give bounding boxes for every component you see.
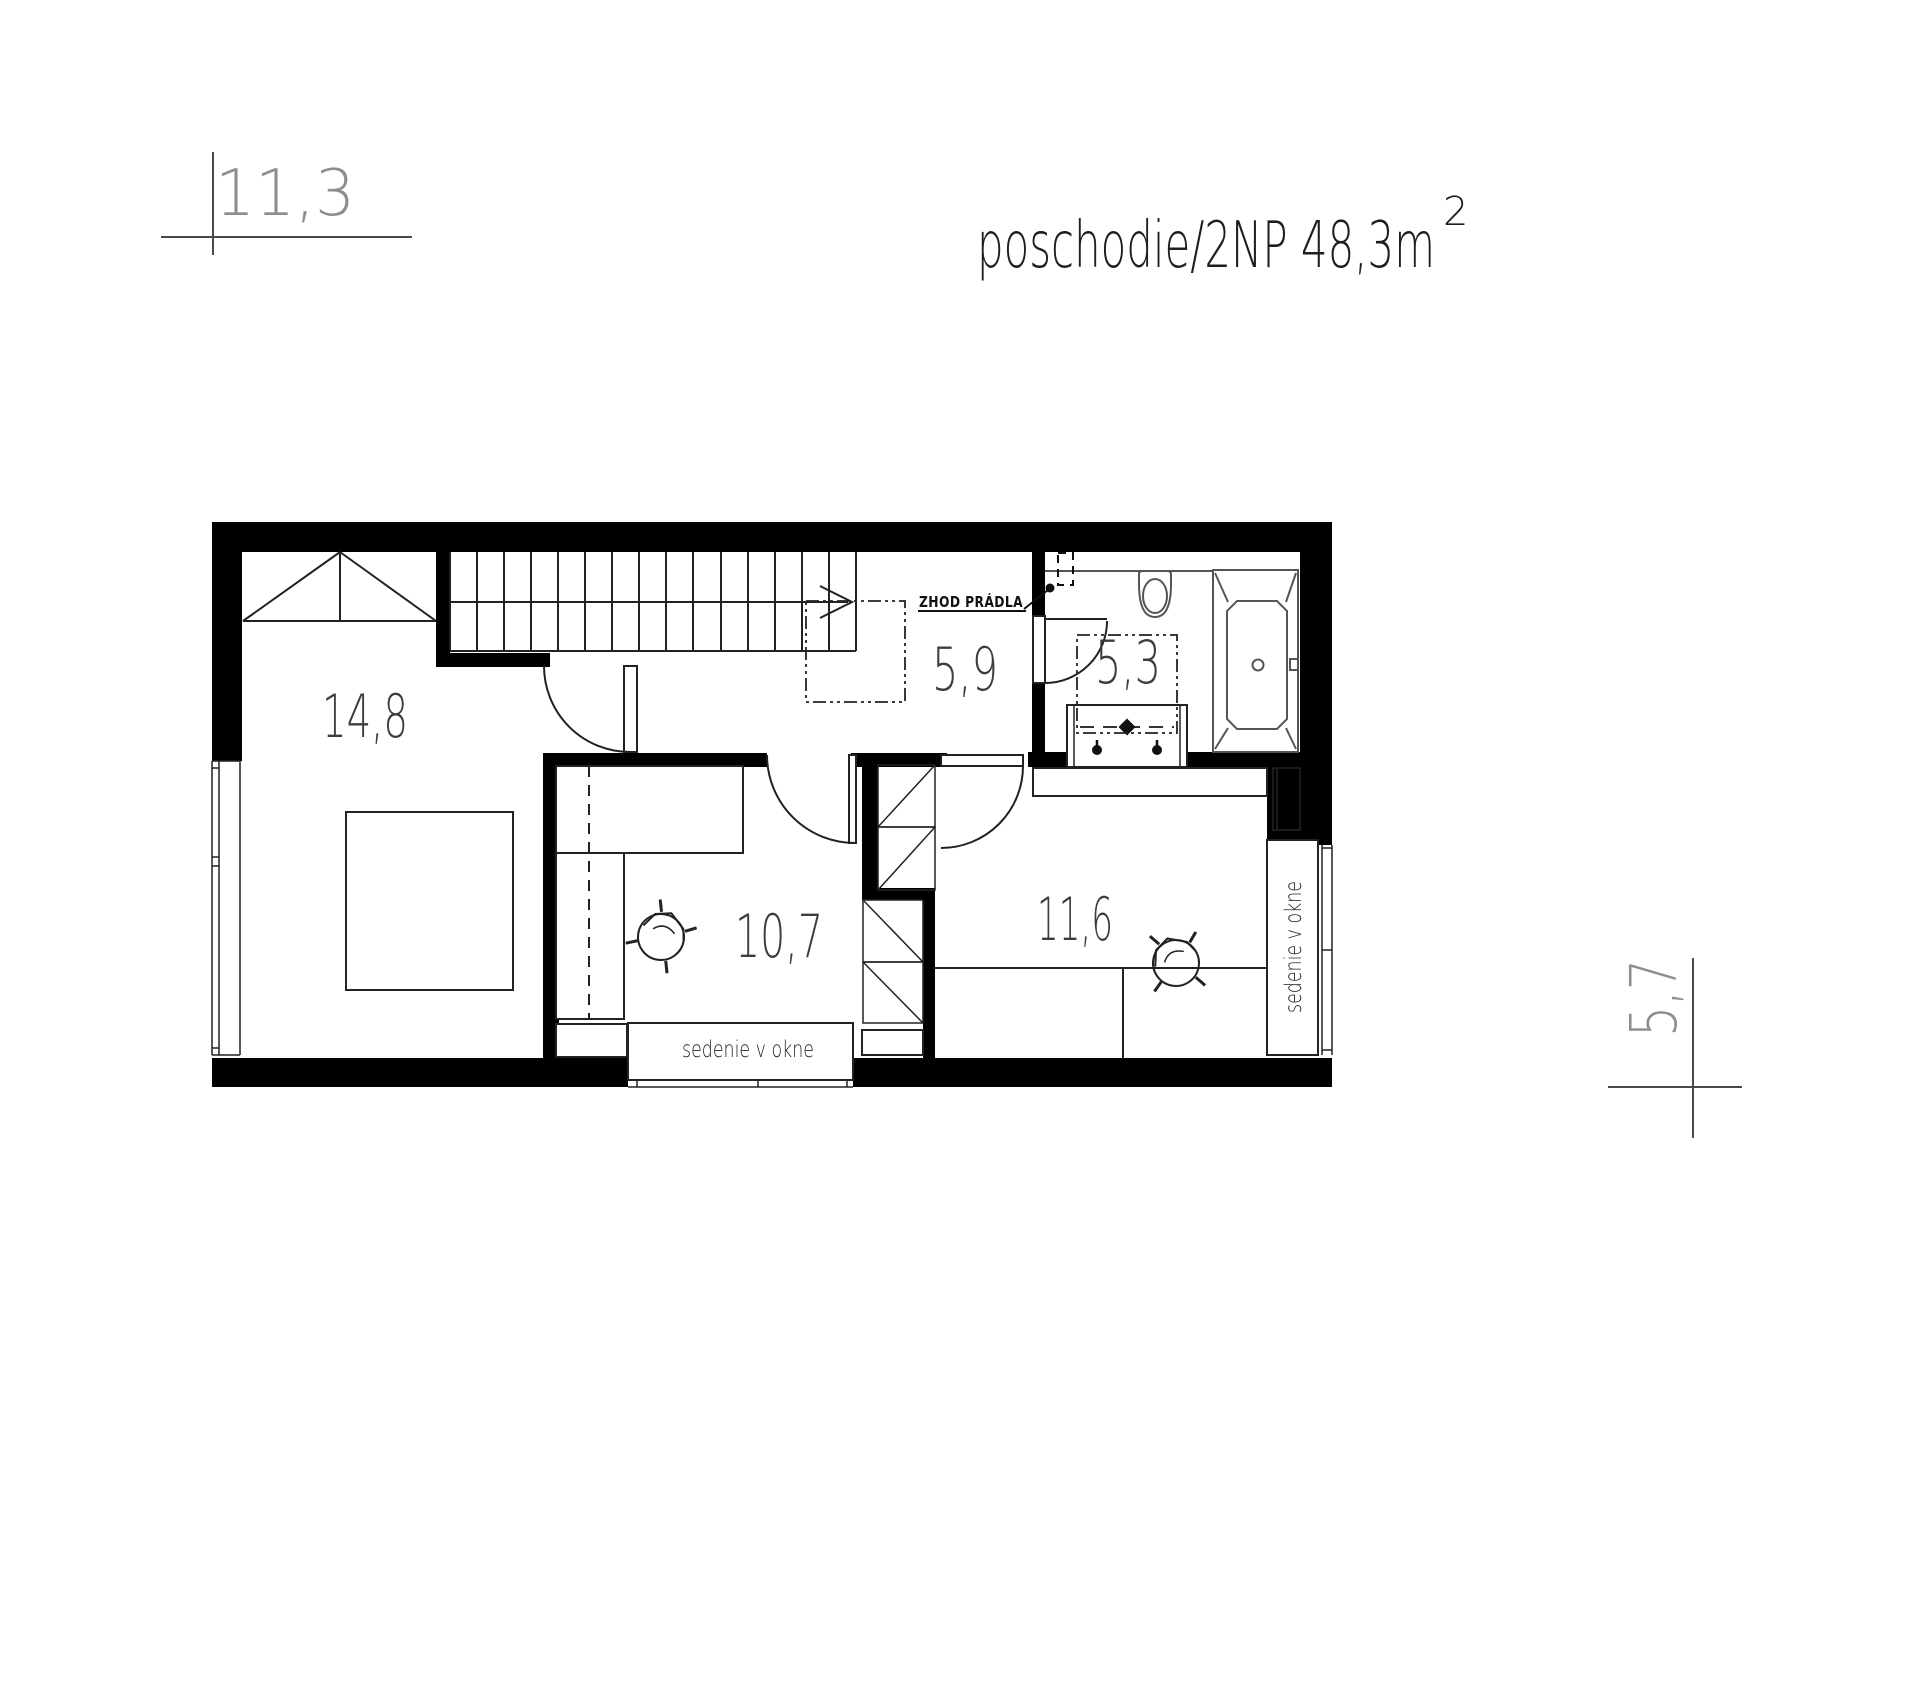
faucet-left (1092, 745, 1102, 755)
room-area-bedroom-right: 11,6 (1037, 885, 1113, 955)
desk-chair-right (1127, 913, 1224, 1011)
staircase (450, 552, 856, 651)
washbasin-vanity (1067, 705, 1187, 767)
desk-middle-room (556, 766, 743, 1019)
window-seat-right-label: sedenie v okne (1281, 881, 1307, 1013)
door-bedroom-middle (767, 755, 856, 843)
dimension-right-label: 5,7 (1618, 959, 1692, 1037)
wardrobe-right-room (1033, 768, 1267, 796)
dimension-top-left: 11,3 (161, 152, 412, 255)
closet-shelves-lower (863, 900, 923, 1023)
desk-right-room (935, 968, 1267, 1058)
bathtub (1213, 570, 1298, 752)
room-area-bedroom-middle: 10,7 (735, 902, 823, 972)
room-area-bathroom: 5,3 (1095, 628, 1161, 698)
title-superscript: 2 (1443, 189, 1468, 235)
door-bedroom-right (941, 755, 1023, 848)
bathtub-faucet (1290, 659, 1298, 670)
window-left (212, 761, 240, 1055)
toilet (1139, 571, 1171, 617)
desk-chair-middle (622, 896, 699, 977)
drawing-title: poschodie/2NP 48,3m 2 (977, 189, 1468, 283)
floor-plan-drawing: ZHOD PRÁDLA 14,8 5,9 5,3 10,7 11,6 seden… (0, 0, 1920, 1686)
room-area-hall: 5,9 (932, 635, 998, 705)
bed (346, 812, 513, 990)
closet-shelves-upper (878, 765, 935, 890)
faucet-right (1152, 745, 1162, 755)
dimension-top-label: 11,3 (215, 157, 355, 231)
window-bottom-bay (628, 1080, 853, 1087)
window-seat-bottom-label: sedenie v okne (682, 1037, 814, 1063)
laundry-chute-label: ZHOD PRÁDLA (919, 592, 1023, 611)
title-text: poschodie/2NP 48,3m (977, 209, 1435, 283)
floor-plan-sheet: ZHOD PRÁDLA 14,8 5,9 5,3 10,7 11,6 seden… (0, 0, 1920, 1686)
room-area-bedroom-left: 14,8 (322, 682, 408, 752)
sloped-ceiling-wardrobe (243, 552, 436, 621)
window-right-bay (1322, 845, 1332, 1055)
dimension-right: 5,7 (1608, 958, 1742, 1138)
door-bedroom-left (544, 666, 637, 752)
